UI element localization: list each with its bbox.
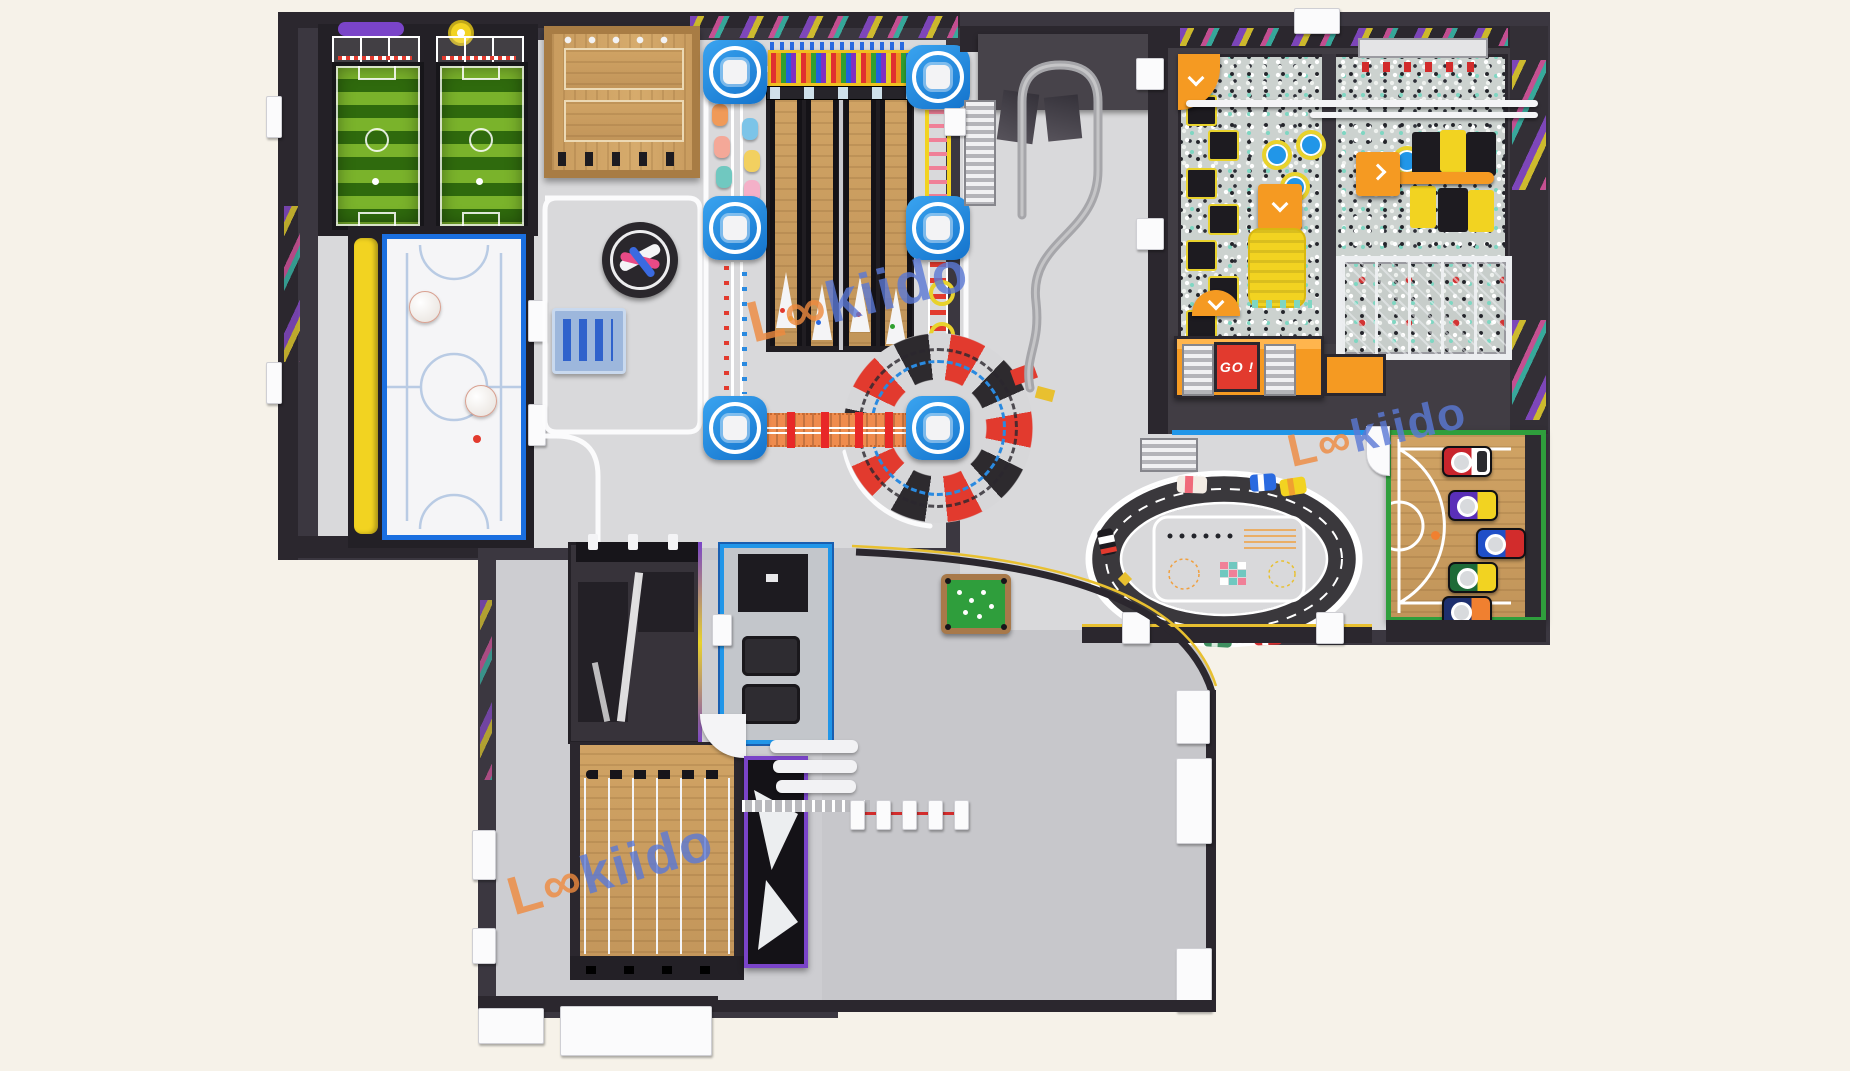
beam-pad-yellow	[1468, 190, 1494, 232]
tower-pad	[926, 65, 950, 89]
hoop-machine	[1448, 490, 1498, 521]
stepping-pod	[714, 136, 730, 158]
lobby-wall-block	[1176, 758, 1212, 844]
pin	[890, 324, 895, 329]
rainbow-pin-rack	[768, 50, 912, 86]
range-wall	[734, 742, 744, 980]
queue-bollard	[928, 800, 943, 830]
foam-pit	[1336, 256, 1512, 360]
deck-stairs-left	[1182, 344, 1214, 396]
beam-pad-black	[1466, 132, 1496, 176]
target-row	[586, 966, 726, 974]
graffiti-wing-wall	[480, 600, 492, 780]
foam-step-pad	[1208, 204, 1239, 235]
rope-bridge-vertical	[731, 104, 743, 198]
tower-pad	[926, 416, 950, 440]
brand-chevron-icon	[1272, 196, 1289, 213]
ninja-tower	[703, 40, 767, 104]
bench	[776, 780, 856, 793]
stepping-pod	[742, 118, 758, 140]
yellow-airbag	[1248, 228, 1306, 308]
wall-post	[1316, 612, 1344, 644]
wall-post	[1136, 218, 1164, 250]
hoop-ring	[1485, 534, 1506, 555]
ninja-tower	[703, 396, 767, 460]
hoop-machine	[1448, 562, 1498, 593]
stepping-pod	[712, 104, 728, 126]
go-sign-label: GO !	[1220, 359, 1254, 375]
bench	[773, 760, 857, 773]
hoop-body	[1483, 567, 1493, 588]
wall-post	[712, 614, 732, 646]
wall-notch	[1294, 8, 1340, 34]
hoop-ring	[1451, 452, 1472, 473]
hoop-body	[1477, 601, 1487, 622]
bridge-strap	[787, 412, 795, 448]
teal-brackets	[1252, 300, 1312, 308]
sim-machine	[742, 684, 800, 724]
basketball-bottom-wall	[1386, 620, 1546, 642]
hoop-machine	[1476, 528, 1526, 559]
lane-monitor-bar	[766, 86, 914, 100]
brand-chevron-icon	[1188, 70, 1205, 87]
foam-step-pad	[1186, 240, 1217, 271]
ball-pit-divider	[1322, 54, 1336, 344]
hoop-ring	[1457, 496, 1478, 517]
basketball	[1431, 531, 1440, 540]
entrance-vestibule	[560, 1006, 712, 1056]
bow-row	[586, 770, 730, 779]
counter-prop	[668, 534, 678, 550]
truss-grid	[1342, 262, 1506, 354]
wall-post	[1136, 58, 1164, 90]
tower-pad	[723, 60, 747, 84]
floorplan-scene: GO !	[0, 0, 1850, 1071]
dark-panel	[638, 572, 694, 632]
cabinet-screen	[766, 574, 778, 582]
overhead-rail	[1310, 112, 1538, 118]
bench	[770, 740, 858, 753]
go-deck-arm	[1324, 354, 1386, 396]
beam-pad-yellow	[1440, 130, 1466, 172]
ninja-tower	[703, 196, 767, 260]
tower-pad	[723, 416, 747, 440]
beam-pad-yellow	[1410, 186, 1436, 228]
stepping-pod	[716, 166, 732, 188]
jump-platform	[1258, 184, 1302, 230]
cabinet-blade	[758, 880, 798, 950]
pit-spinner-seat	[1262, 140, 1292, 170]
hoop-body	[1477, 451, 1487, 472]
queue-bollard	[850, 800, 865, 830]
red-gear-row	[1362, 62, 1486, 72]
foam-step-pad	[1186, 168, 1217, 199]
hoop-body	[1511, 533, 1521, 554]
counter-prop	[588, 534, 598, 550]
hoop-ring	[1457, 568, 1478, 589]
sim-cabinet	[738, 554, 808, 612]
deck-stairs-right	[1264, 344, 1296, 396]
door-block	[472, 928, 496, 964]
sim-machine	[742, 636, 800, 676]
wall-post	[944, 108, 966, 136]
graffiti-right-wall	[1512, 60, 1546, 190]
entrance-stub	[478, 1008, 544, 1044]
tower-pad	[723, 216, 747, 240]
beam-pad-black	[1438, 188, 1468, 232]
queue-bollard	[954, 800, 969, 830]
brand-chevron-icon	[1208, 294, 1225, 311]
plank-bridge	[767, 413, 907, 447]
ninja-tower-pinwheel	[906, 396, 970, 460]
queue-bollard	[902, 800, 917, 830]
counter-prop	[628, 534, 638, 550]
queue-bollard	[876, 800, 891, 830]
overhead-rail	[1186, 100, 1538, 107]
bridge-strap	[855, 412, 863, 448]
hoop-machine	[1442, 446, 1492, 477]
tower-pad	[926, 216, 950, 240]
stepping-pod	[744, 150, 760, 172]
go-sign: GO !	[1214, 342, 1260, 392]
door-block	[472, 830, 496, 880]
beam-platform	[1356, 152, 1400, 196]
graffiti-right-wall	[1512, 320, 1546, 420]
pit-spinner-seat	[1296, 130, 1326, 160]
bridge-strap	[821, 412, 829, 448]
bridge-strap	[885, 412, 893, 448]
beam-pad-black	[1412, 132, 1442, 176]
lobby-bottom-wall	[690, 1000, 1216, 1012]
court-back-wall	[1525, 435, 1541, 617]
dark-counter-room	[568, 542, 702, 744]
foam-step-pad	[1208, 130, 1239, 161]
brand-chevron-icon	[1370, 164, 1387, 181]
gear-shelf	[1358, 38, 1488, 58]
lobby-wall-block	[1176, 690, 1210, 744]
flag-ticks-left	[724, 266, 729, 394]
hoop-body	[1483, 495, 1493, 516]
